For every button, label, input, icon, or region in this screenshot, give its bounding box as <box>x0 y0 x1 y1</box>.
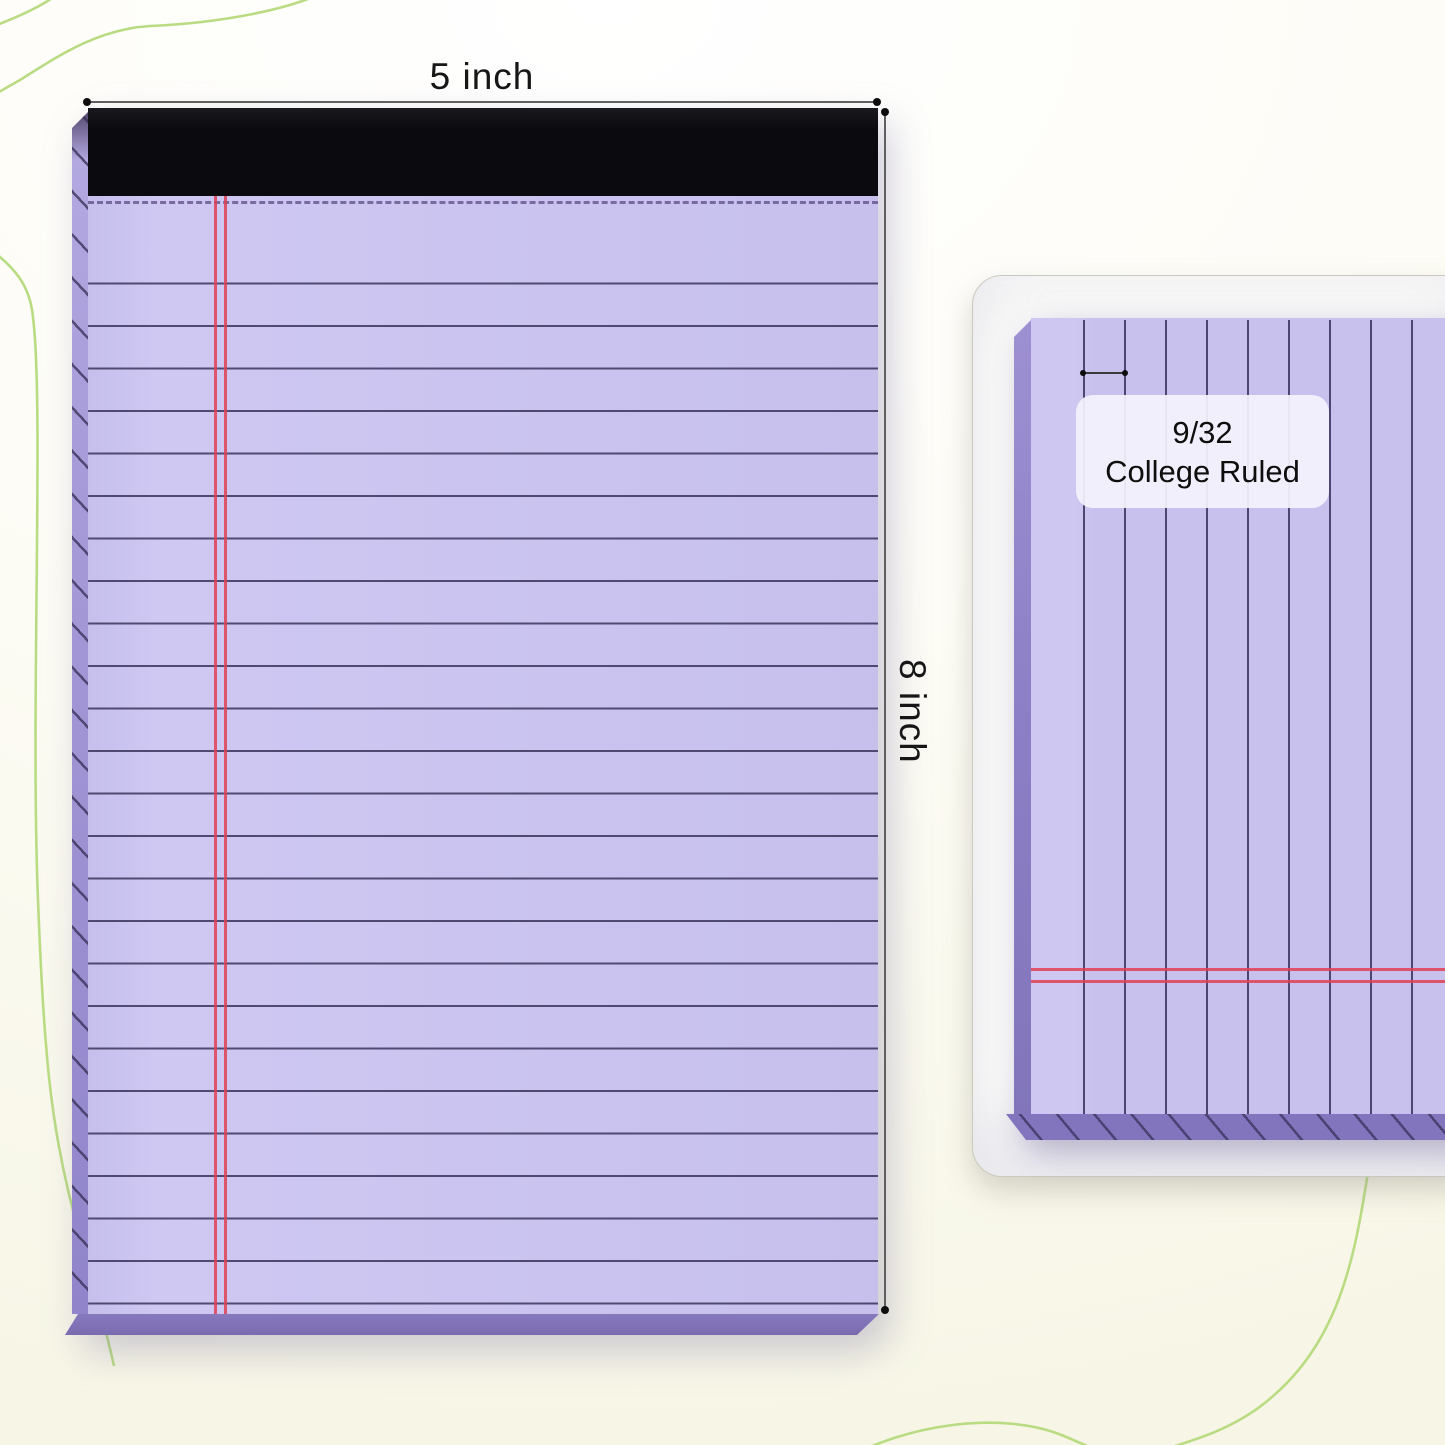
perforation-line <box>88 201 878 204</box>
curve-bottom-right-wave <box>840 1423 1198 1445</box>
product-dimension-diagram: 5 inch 8 inch 9/32 College Rule <box>0 0 1445 1445</box>
ruling-label: 9/32 College Ruled <box>1076 395 1329 508</box>
margin-line <box>224 196 227 1314</box>
width-dimension-label: 5 inch <box>87 56 877 98</box>
notepad-binding <box>88 108 878 196</box>
height-dimension-label: 8 inch <box>888 112 936 1310</box>
margin-line <box>214 196 217 1314</box>
ruling-name: College Ruled <box>1105 452 1300 491</box>
notepad-front-view <box>72 108 878 1336</box>
line-spacing-dimension <box>1083 372 1125 374</box>
ruling-fraction: 9/32 <box>1172 413 1232 452</box>
ruled-lines <box>88 242 878 1310</box>
detail-margin-line <box>1031 968 1445 971</box>
curve-bottom-right <box>1058 1172 1368 1445</box>
detail-bottom-edge <box>1006 1114 1445 1140</box>
dimension-endpoint-dot <box>1122 370 1128 376</box>
dimension-endpoint-dot <box>1080 370 1086 376</box>
height-dimension-line <box>884 112 886 1310</box>
detail-page-stack-edge <box>1014 320 1031 1114</box>
dimension-endpoint-dot <box>873 98 881 106</box>
curve-top-left-inner <box>0 0 58 26</box>
dimension-endpoint-dot <box>83 98 91 106</box>
notepad-bottom-edge <box>65 1314 879 1335</box>
notepad-page-stack-edge <box>72 112 88 1314</box>
detail-margin-line <box>1031 980 1445 983</box>
notepad-paper <box>88 196 878 1314</box>
width-dimension-line <box>87 101 877 103</box>
